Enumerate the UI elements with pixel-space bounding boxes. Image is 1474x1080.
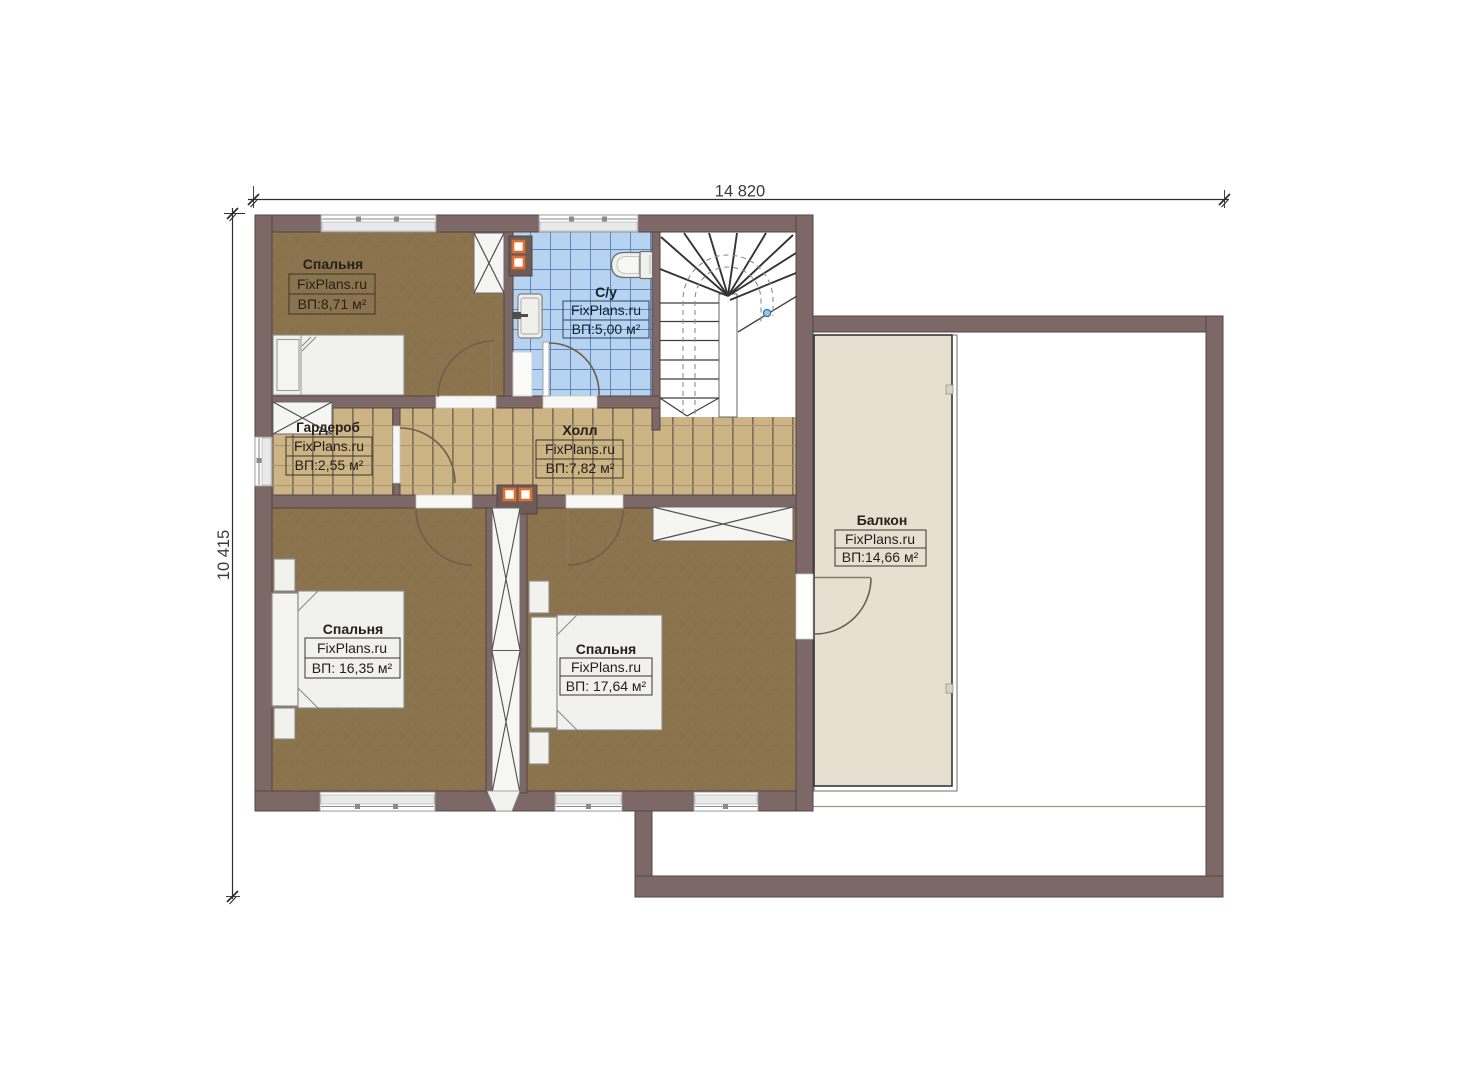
svg-text:ВП:14,66 м²: ВП:14,66 м² <box>842 549 919 565</box>
svg-text:Спальня: Спальня <box>576 641 636 657</box>
svg-text:ВП:8,71 м²: ВП:8,71 м² <box>298 296 367 312</box>
svg-text:Холл: Холл <box>562 422 597 438</box>
svg-text:ВП:2,55 м²: ВП:2,55 м² <box>295 457 364 473</box>
svg-text:FixPlans.ru: FixPlans.ru <box>571 302 641 318</box>
svg-text:ВП:7,82 м²: ВП:7,82 м² <box>546 460 615 476</box>
svg-text:FixPlans.ru: FixPlans.ru <box>545 441 615 457</box>
svg-text:Гардероб: Гардероб <box>296 420 360 435</box>
svg-text:Спальня: Спальня <box>303 256 363 272</box>
svg-text:ВП: 16,35 м²: ВП: 16,35 м² <box>312 660 393 676</box>
svg-text:14 820: 14 820 <box>715 183 765 201</box>
svg-text:Спальня: Спальня <box>323 621 383 637</box>
svg-text:FixPlans.ru: FixPlans.ru <box>571 659 641 675</box>
svg-text:Балкон: Балкон <box>857 512 908 528</box>
svg-text:ВП:5,00 м²: ВП:5,00 м² <box>572 321 641 337</box>
svg-text:FixPlans.ru: FixPlans.ru <box>297 276 367 292</box>
svg-text:FixPlans.ru: FixPlans.ru <box>845 531 915 547</box>
svg-text:FixPlans.ru: FixPlans.ru <box>294 438 364 454</box>
svg-text:10 415: 10 415 <box>215 530 233 580</box>
svg-text:С/у: С/у <box>595 284 617 300</box>
svg-text:ВП: 17,64 м²: ВП: 17,64 м² <box>566 678 647 694</box>
svg-text:FixPlans.ru: FixPlans.ru <box>317 640 387 656</box>
